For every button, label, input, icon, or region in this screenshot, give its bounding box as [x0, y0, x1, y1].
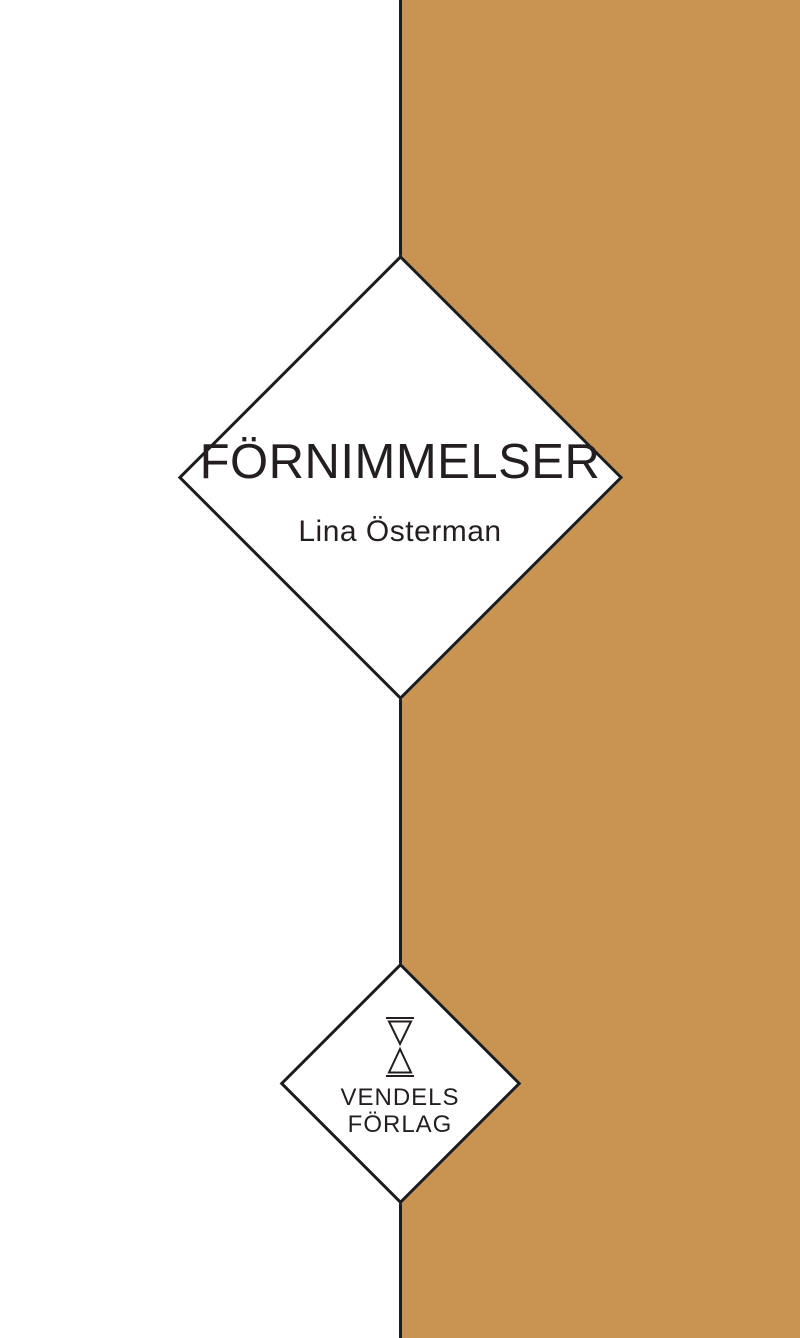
hourglass-icon: [385, 1016, 415, 1078]
publisher-name-line1: VENDELS: [0, 1084, 800, 1111]
publisher-name: VENDELS FÖRLAG: [0, 1084, 800, 1138]
publisher-logo: [0, 1016, 800, 1078]
book-cover: FÖRNIMMELSER Lina Österman VENDELS FÖRLA…: [0, 0, 800, 1338]
book-title: FÖRNIMMELSER: [0, 437, 800, 487]
publisher-name-line2: FÖRLAG: [0, 1111, 800, 1138]
book-author: Lina Österman: [0, 517, 800, 547]
